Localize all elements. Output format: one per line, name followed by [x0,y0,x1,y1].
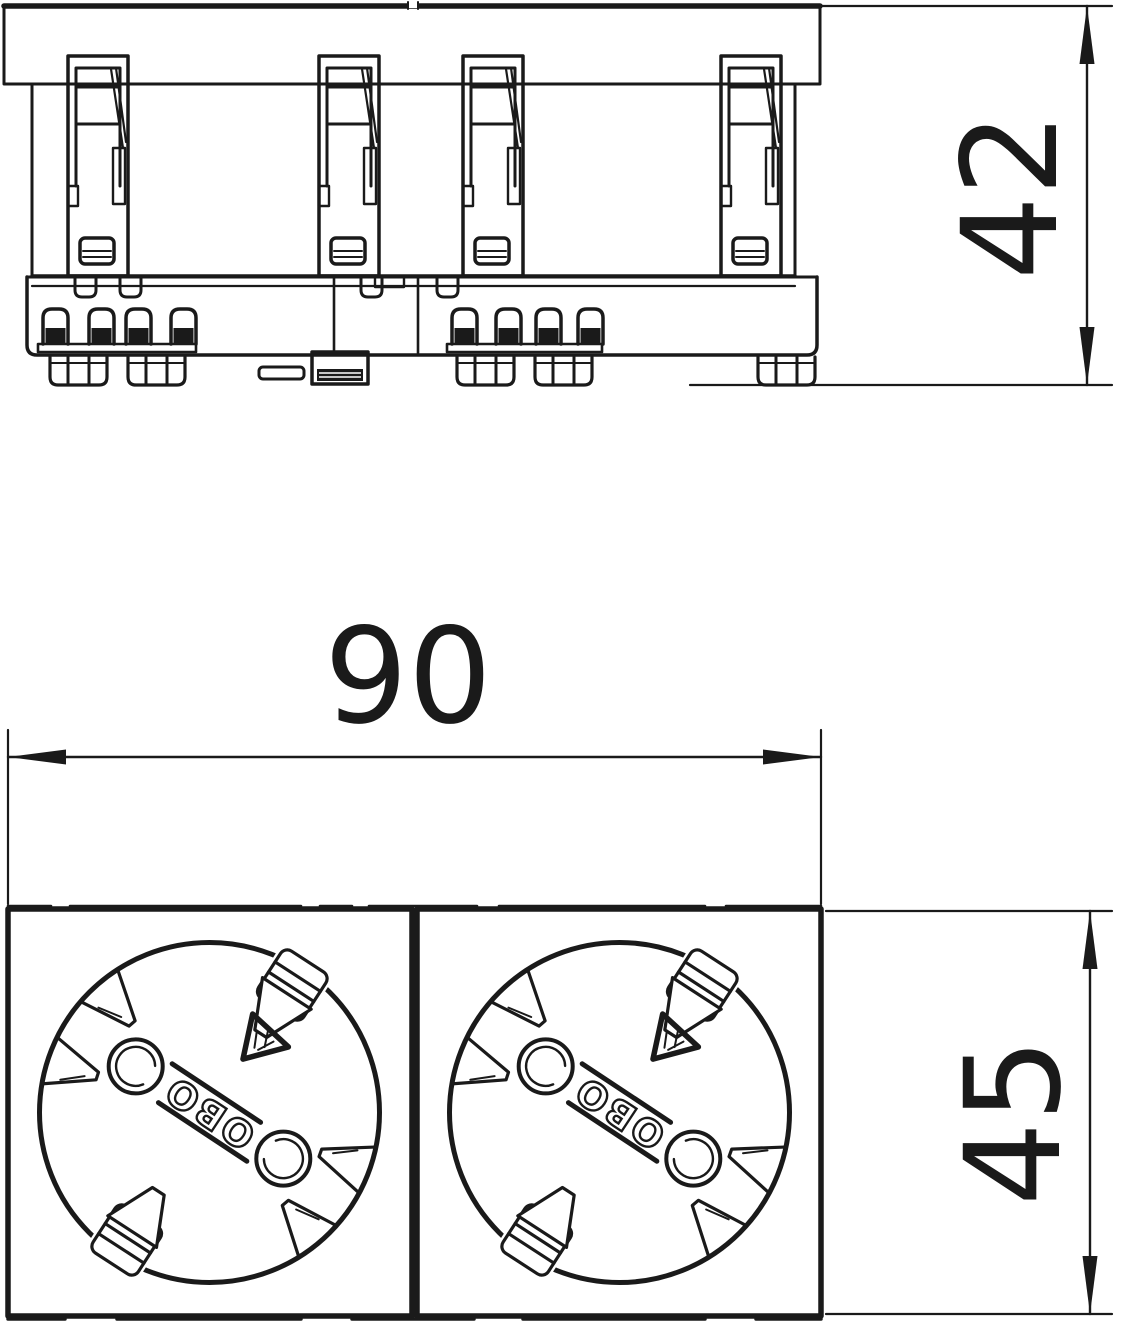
mounting-claw [463,56,523,276]
screw-foot [128,357,185,385]
obo-logo-left: OBO [156,1067,263,1158]
mounting-claw [68,56,128,276]
terminal-lug [452,309,477,344]
obo-logo-right: OBO [566,1067,673,1158]
terminal-lug [578,309,603,344]
terminal-lug [89,309,114,344]
terminal-lug [43,309,68,344]
screw-foot [758,357,815,385]
front-view: OBO OBO [8,906,821,1319]
dimension-module-45: 45 [826,911,1112,1314]
base-rail [27,277,817,385]
side-view [4,1,820,385]
mounting-claw [319,56,379,276]
screw-foot [50,357,107,385]
dimension-width-90: 90 [8,600,821,904]
screw-foot [535,357,592,385]
dim-label-90: 90 [324,600,492,754]
mounting-claw [721,56,781,276]
technical-drawing-page: OBO OBO 42 90 45 [0,0,1125,1321]
terminal-lug [496,309,521,344]
terminal-lug [536,309,561,344]
terminal-lug [126,309,151,344]
dim-label-42: 42 [934,112,1088,280]
terminal-lug [171,309,196,344]
drawing-svg: OBO OBO 42 90 45 [0,0,1125,1321]
screw-foot [457,357,514,385]
top-notch [408,1,418,8]
dimension-height-42: 42 [690,6,1112,385]
dim-label-45: 45 [937,1038,1091,1206]
